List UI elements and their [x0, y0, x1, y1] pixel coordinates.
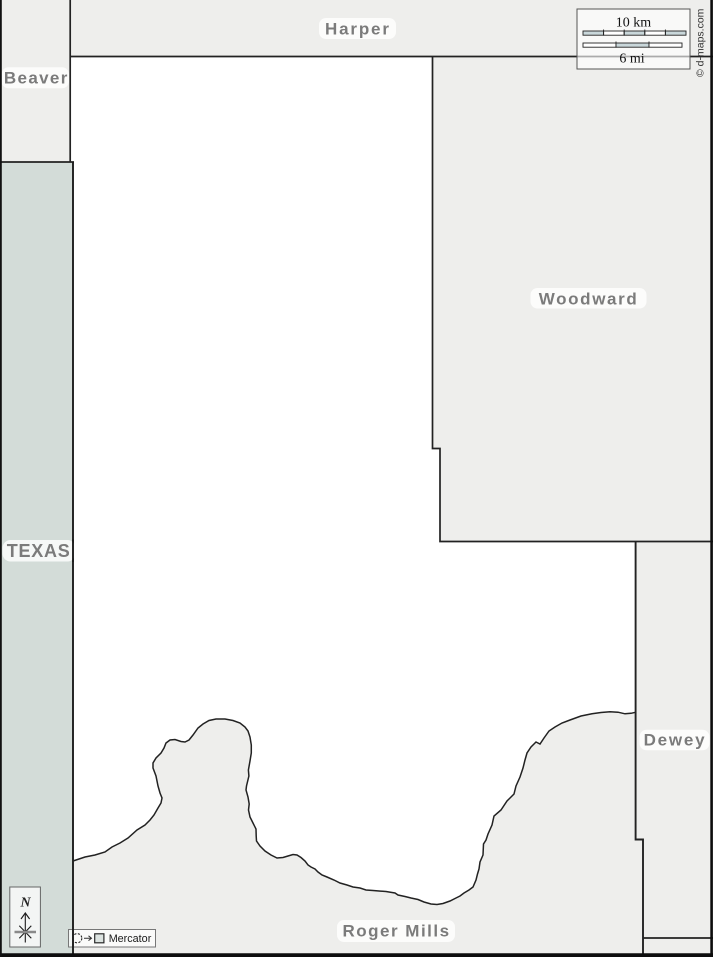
svg-text:10 km: 10 km — [616, 16, 652, 31]
svg-text:Roger Mills: Roger Mills — [342, 921, 450, 940]
svg-text:N: N — [19, 896, 31, 911]
svg-text:6 mi: 6 mi — [619, 52, 644, 67]
svg-text:Dewey: Dewey — [644, 730, 707, 749]
svg-text:TEXAS: TEXAS — [7, 541, 71, 561]
svg-text:Harper: Harper — [325, 20, 391, 39]
svg-text:© d-maps.com: © d-maps.com — [694, 8, 706, 77]
svg-text:Mercator: Mercator — [109, 933, 152, 945]
svg-text:Woodward: Woodward — [539, 289, 639, 308]
svg-text:Beaver: Beaver — [4, 69, 69, 88]
